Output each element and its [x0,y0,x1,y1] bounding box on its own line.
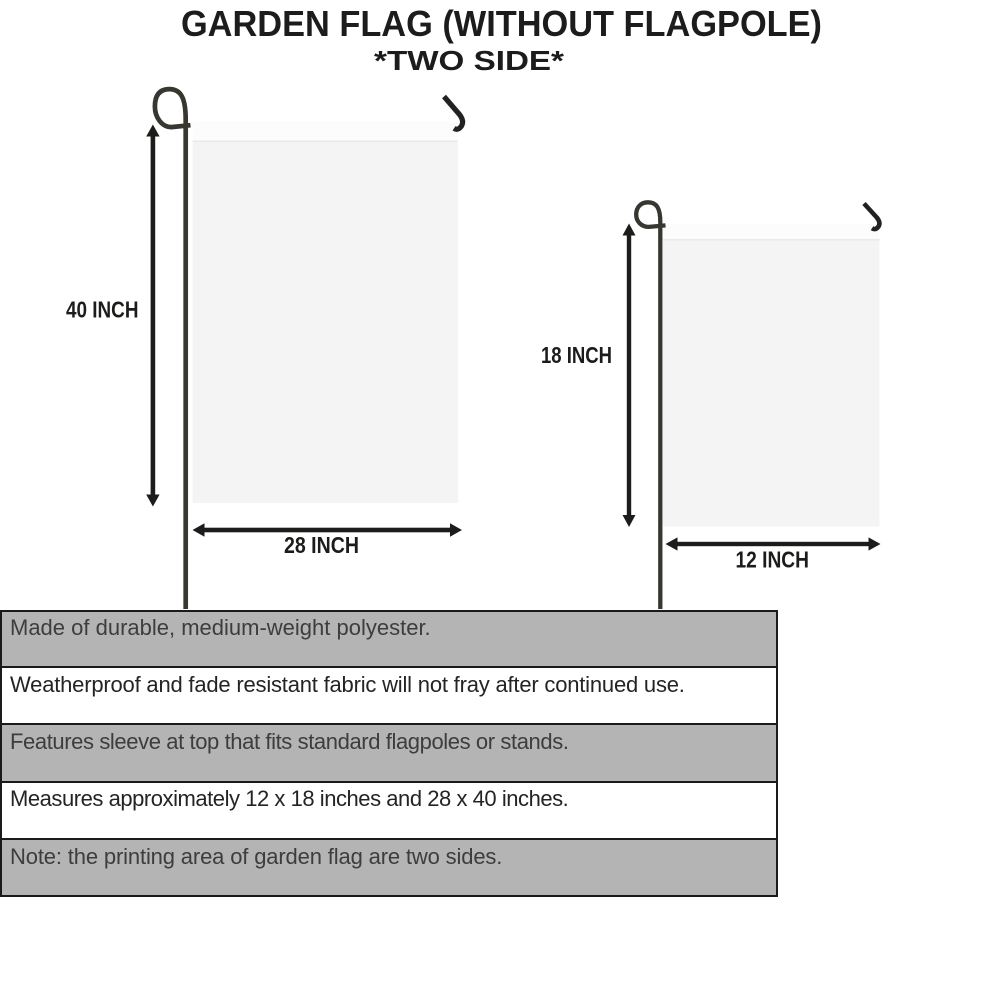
svg-text:40 INCH: 40 INCH [66,297,139,323]
svg-text:28 INCH: 28 INCH [284,532,359,558]
svg-text:12 INCH: 12 INCH [736,547,810,573]
svg-text:18 INCH: 18 INCH [541,342,612,368]
